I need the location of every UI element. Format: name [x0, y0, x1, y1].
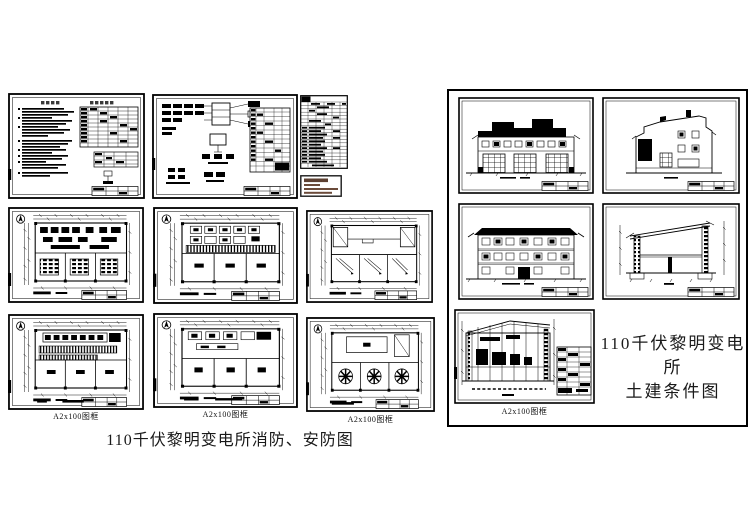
config-table: [250, 108, 290, 172]
civil-set-title: 110千伏黎明变电所 土建条件图: [600, 332, 746, 404]
sheet-drawing-list-table: [300, 95, 348, 169]
section-large-caption: A2x100图框: [454, 406, 595, 417]
cad-drawing-montage: A2x100图框 A2x100图框 A2x100图框 110千伏黎明变电所消防、…: [0, 0, 749, 530]
stamp-box: [300, 175, 342, 197]
plan-6-caption: A2x100图框: [306, 414, 435, 425]
sheet-elevation-front: [458, 97, 594, 194]
equipment-table: [80, 107, 138, 147]
sheet-floor-plan-3: [306, 210, 433, 303]
sheet-elevation-side: [602, 97, 740, 194]
sheet-design-notes: [8, 93, 145, 199]
sheet-floor-plan-5: [153, 313, 298, 408]
plan-5-caption: A2x100图框: [153, 409, 298, 420]
sheet-floor-plan-4: [8, 314, 144, 410]
civil-set-title-line1: 110千伏黎明变电所: [600, 332, 746, 380]
civil-set-title-line2: 土建条件图: [600, 380, 746, 404]
fire-security-set-title: 110千伏黎明变电所消防、安防图: [105, 426, 355, 450]
plan-4-caption: A2x100图框: [8, 411, 144, 422]
sheet-section: [602, 203, 740, 300]
sheet-system-diagram: [152, 94, 298, 199]
title-table: [557, 347, 591, 395]
sheet-floor-plan-2: [153, 207, 298, 304]
sheet-section-large: [454, 309, 595, 404]
sheet-floor-plan-6: [306, 317, 435, 412]
sheet-floor-plan-1: [8, 207, 144, 303]
sheet-elevation-rear: [458, 203, 594, 300]
